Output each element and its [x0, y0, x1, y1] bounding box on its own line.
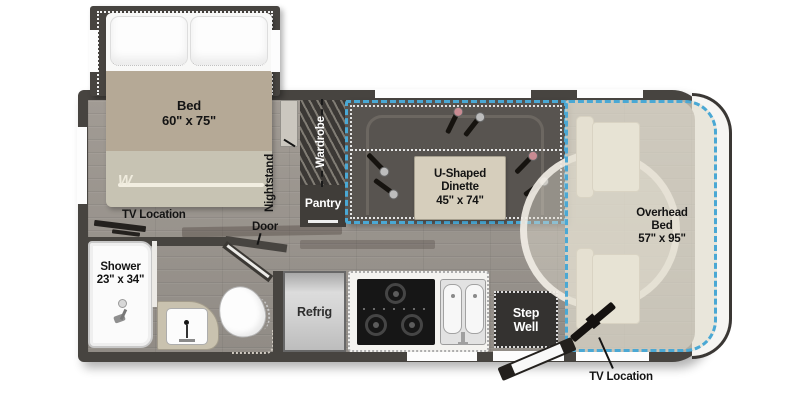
- refrig-label: Refrig: [297, 305, 332, 319]
- double-sink: [440, 279, 486, 345]
- overhead-label-dims: 57" x 95": [638, 233, 685, 245]
- faucet-icon: [461, 332, 465, 343]
- shower-label: Shower 23" x 34": [90, 261, 151, 287]
- overhead-label-2: Bed: [651, 220, 672, 232]
- window: [77, 127, 87, 204]
- dinette-label-dims: 45" x 74": [436, 195, 483, 209]
- shower-divider-wall: [152, 241, 157, 307]
- burner-icon: [401, 314, 423, 336]
- burner-icon: [365, 314, 387, 336]
- tv-location-label-cab: TV Location: [575, 371, 667, 384]
- pantry-label: Pantry: [300, 197, 346, 210]
- dinette-table: U-Shaped Dinette 45" x 74": [414, 156, 506, 220]
- refrigerator: Refrig: [283, 271, 346, 352]
- rv-floorplan: W Bed 60" x 75" Nightstand Wardrobe Pant…: [0, 0, 800, 400]
- cooktop-controls: [363, 308, 429, 310]
- galley-wall: [273, 271, 283, 352]
- window: [271, 30, 280, 72]
- burner-icon: [385, 283, 406, 304]
- window: [576, 352, 649, 361]
- window: [89, 30, 98, 72]
- step-well: Step Well: [494, 291, 558, 348]
- sink-drain: [179, 339, 195, 342]
- pillow: [190, 16, 268, 66]
- shower: Shower 23" x 34": [88, 241, 153, 348]
- pantry: Pantry: [300, 185, 346, 227]
- shower-label-dims: 23" x 34": [97, 274, 144, 286]
- bed-band: [118, 183, 264, 187]
- overhead-bed-overlay: Overhead Bed 57" x 95": [565, 100, 717, 352]
- bed-label: Bed 60" x 75": [139, 98, 239, 128]
- bed-label-dims: 60" x 75": [139, 113, 239, 128]
- wardrobe-label: Wardrobe: [315, 99, 329, 185]
- cooktop: [357, 279, 435, 345]
- dinette-label-1: U-Shaped: [434, 168, 486, 182]
- dinette-label-2: Dinette: [441, 181, 479, 195]
- floor-plank-streak: [300, 240, 435, 249]
- door-label: Door: [252, 221, 278, 234]
- window: [407, 352, 477, 361]
- faucet-stem: [186, 325, 188, 338]
- brand-logo: W: [118, 172, 132, 189]
- pantry-shelf-mark: [308, 220, 338, 223]
- kitchen-counter: [348, 271, 489, 352]
- pillow: [110, 16, 188, 66]
- sink-basin: [443, 284, 462, 334]
- nightstand-label: Nightstand: [264, 140, 278, 226]
- bed-label-name: Bed: [139, 98, 239, 113]
- window: [375, 89, 531, 98]
- shower-drain: [118, 299, 127, 308]
- tv-location-label-bedroom: TV Location: [122, 209, 186, 222]
- bathroom-vanity: [157, 301, 219, 350]
- floor-dotted-border: [232, 330, 274, 354]
- sink-basin: [465, 284, 484, 334]
- bathroom-sink: [166, 308, 208, 345]
- stepwell-label-1: Step: [513, 306, 539, 320]
- overhead-bed-label: Overhead Bed 57" x 95": [612, 207, 712, 246]
- stepwell-label-2: Well: [514, 320, 539, 334]
- overhead-label-1: Overhead: [636, 207, 687, 219]
- shower-label-name: Shower: [100, 261, 140, 273]
- window: [577, 89, 643, 98]
